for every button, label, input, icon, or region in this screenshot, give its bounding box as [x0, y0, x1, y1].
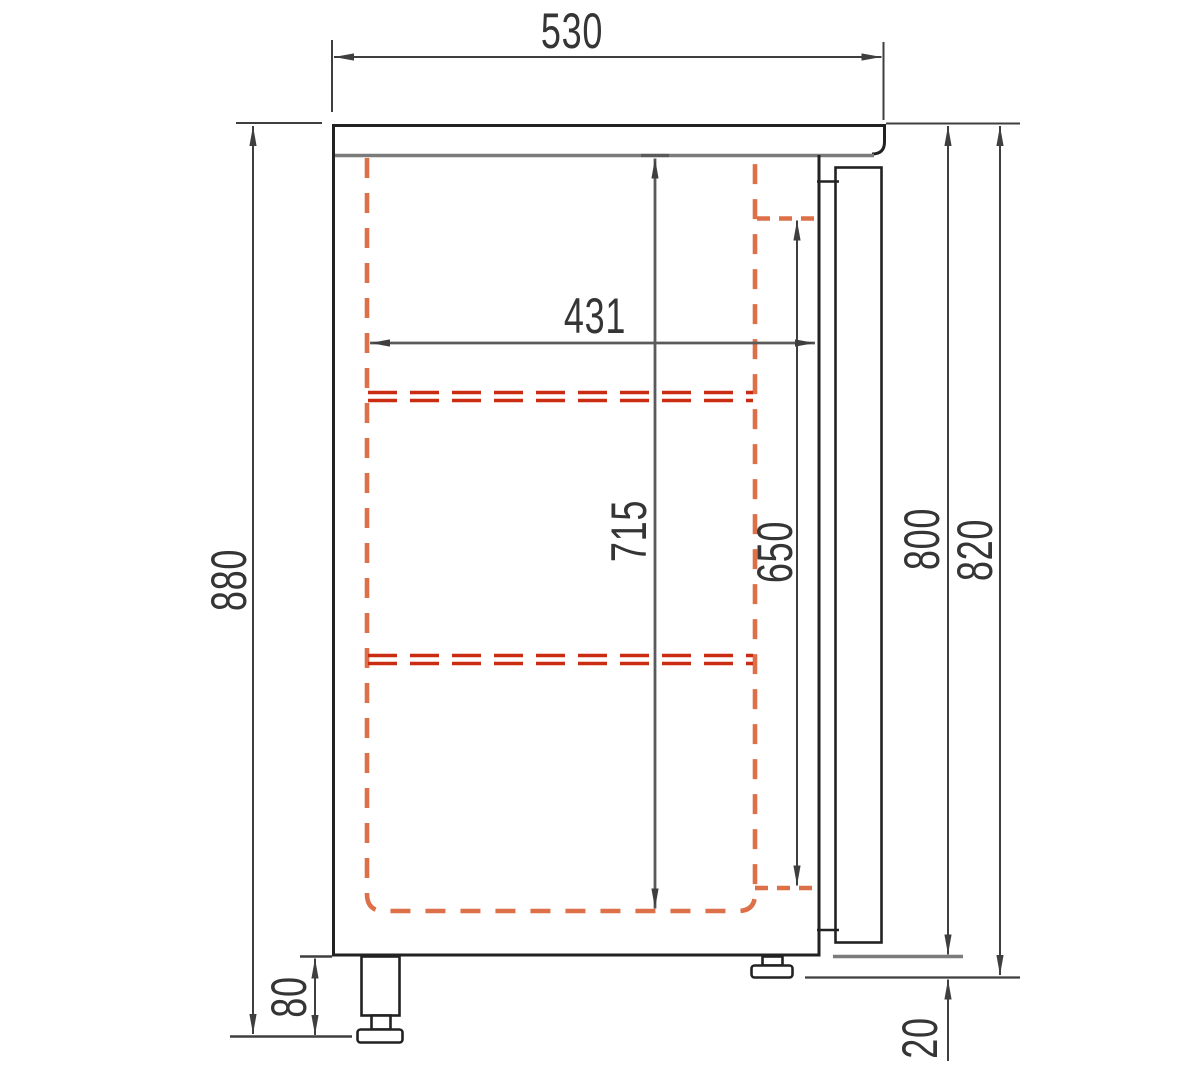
worktop: [332, 126, 886, 156]
dim-label-overall-height: 880: [204, 549, 254, 611]
drawing-linework: [0, 0, 1200, 1080]
dim-label-body-height: 800: [897, 508, 947, 570]
dim-top-width: [332, 40, 884, 120]
dim-label-interior-depth: 431: [564, 291, 626, 341]
dim-label-foot-height: 20: [895, 1017, 945, 1058]
left-foot: [358, 957, 403, 1043]
dim-label-body-with-feet-height: 820: [950, 519, 1000, 581]
right-foot: [752, 957, 793, 978]
dim-label-leg-height: 80: [264, 976, 314, 1017]
dim-label-interior-height: 715: [604, 500, 654, 562]
door-panel: [817, 168, 882, 943]
dimension-drawing: 530 880 431 715 650 800 820 80 20: [0, 0, 1200, 1080]
dim-label-door-interior-height: 650: [750, 521, 800, 583]
shelf-lines: [368, 393, 753, 664]
dim-label-top-width: 530: [541, 6, 603, 56]
